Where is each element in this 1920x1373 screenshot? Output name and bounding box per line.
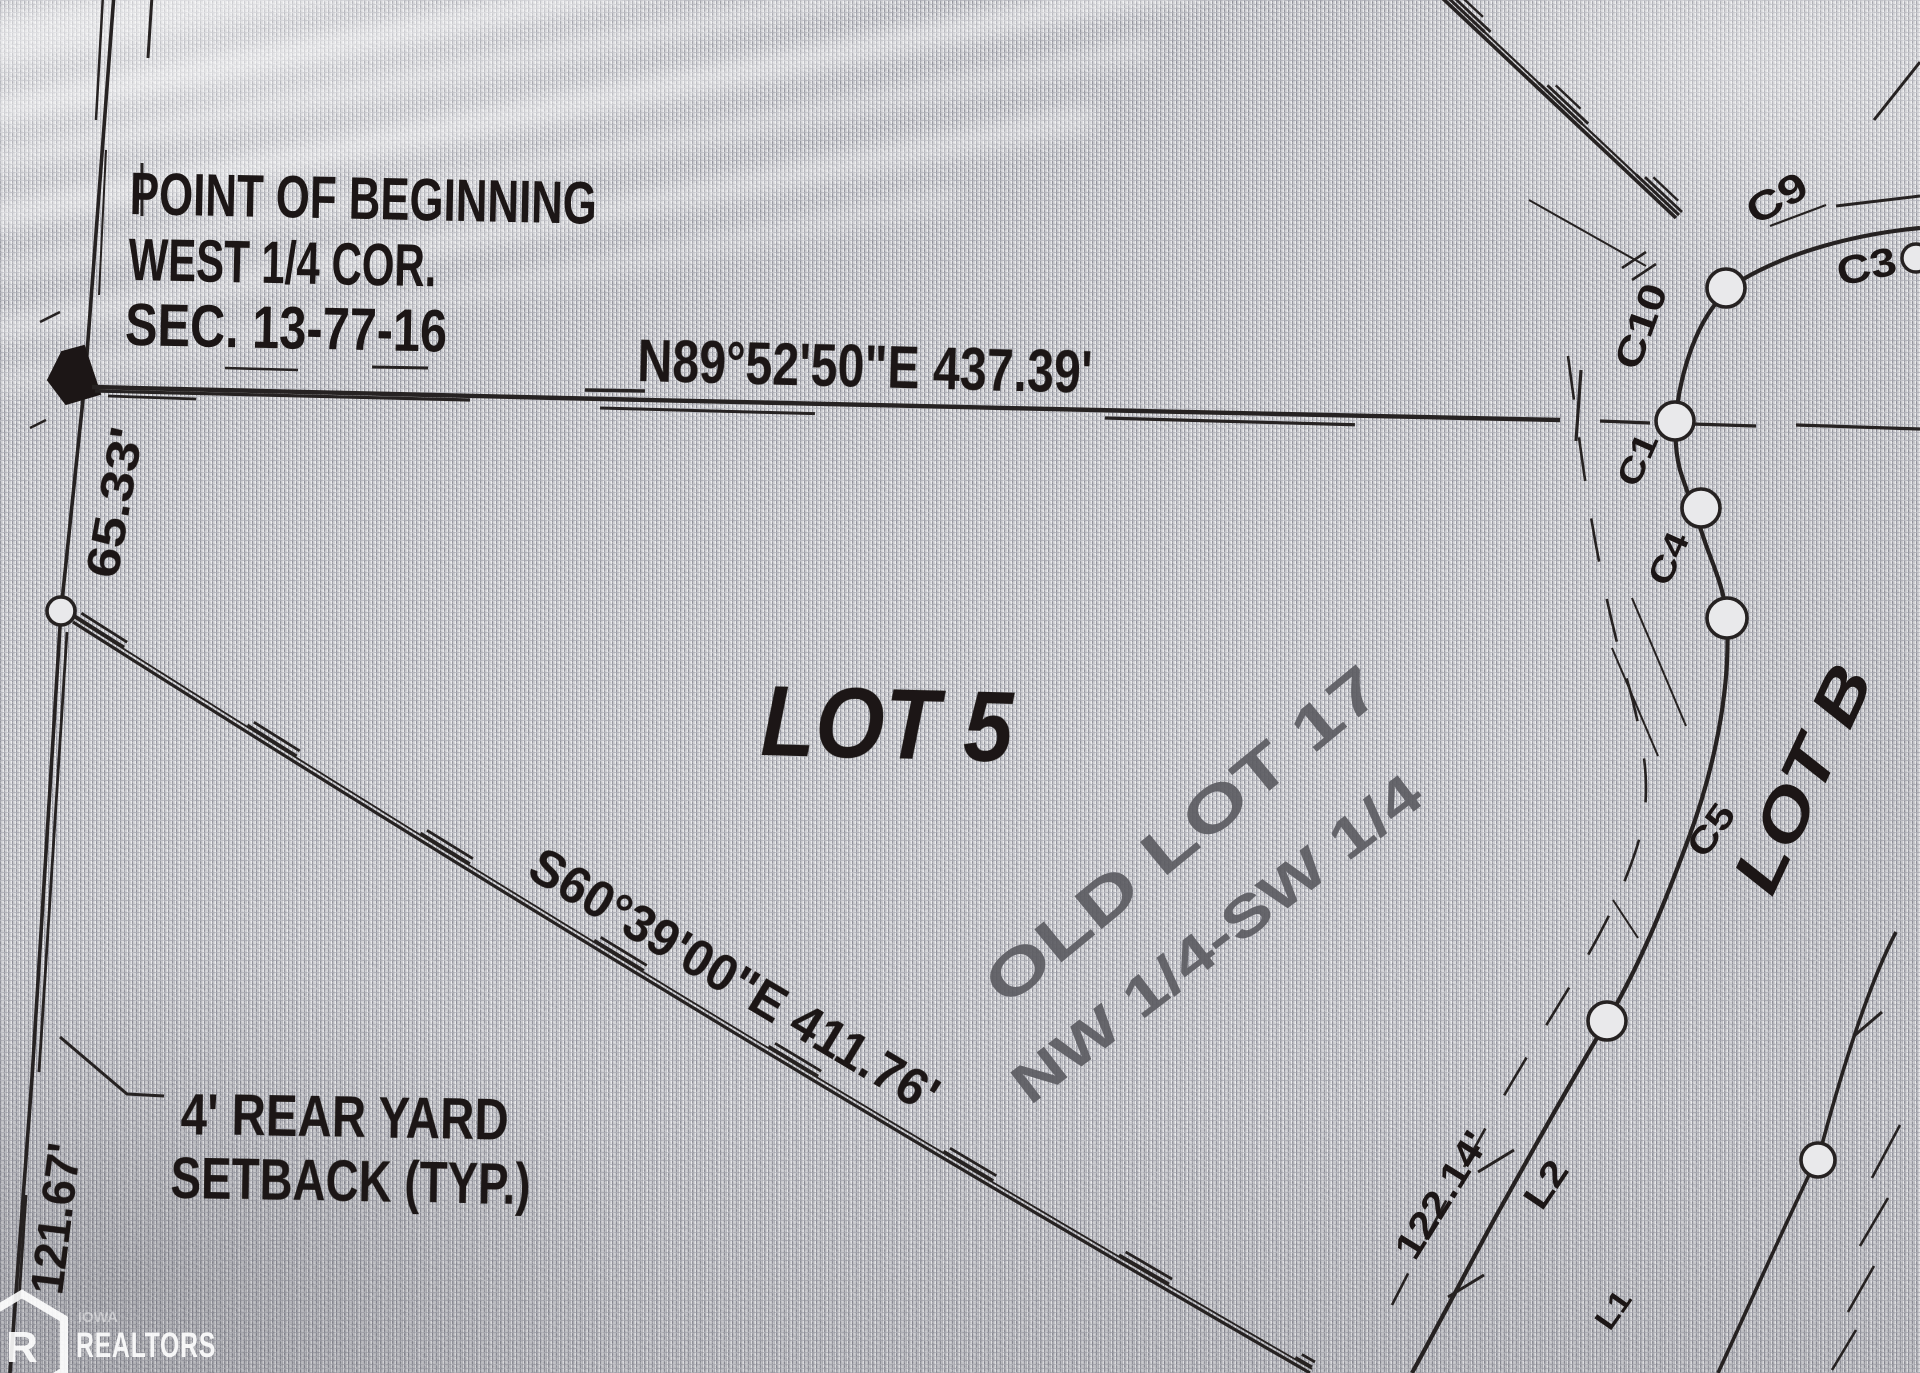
svg-text:SEC. 13-77-16: SEC. 13-77-16 <box>124 291 447 365</box>
svg-text:POINT OF BEGINNING: POINT OF BEGINNING <box>129 160 597 237</box>
svg-text:REALTORS: REALTORS <box>76 1326 216 1365</box>
svg-text:R: R <box>6 1323 38 1372</box>
svg-text:N89°52'50"E 437.39': N89°52'50"E 437.39' <box>637 327 1094 406</box>
svg-text:LOT 5: LOT 5 <box>760 665 1016 784</box>
svg-text:SETBACK (TYP.): SETBACK (TYP.) <box>170 1146 531 1217</box>
svg-text:4' REAR YARD: 4' REAR YARD <box>180 1082 509 1153</box>
svg-text:WEST 1/4 COR.: WEST 1/4 COR. <box>128 226 437 299</box>
svg-text:IOWA: IOWA <box>78 1309 118 1326</box>
